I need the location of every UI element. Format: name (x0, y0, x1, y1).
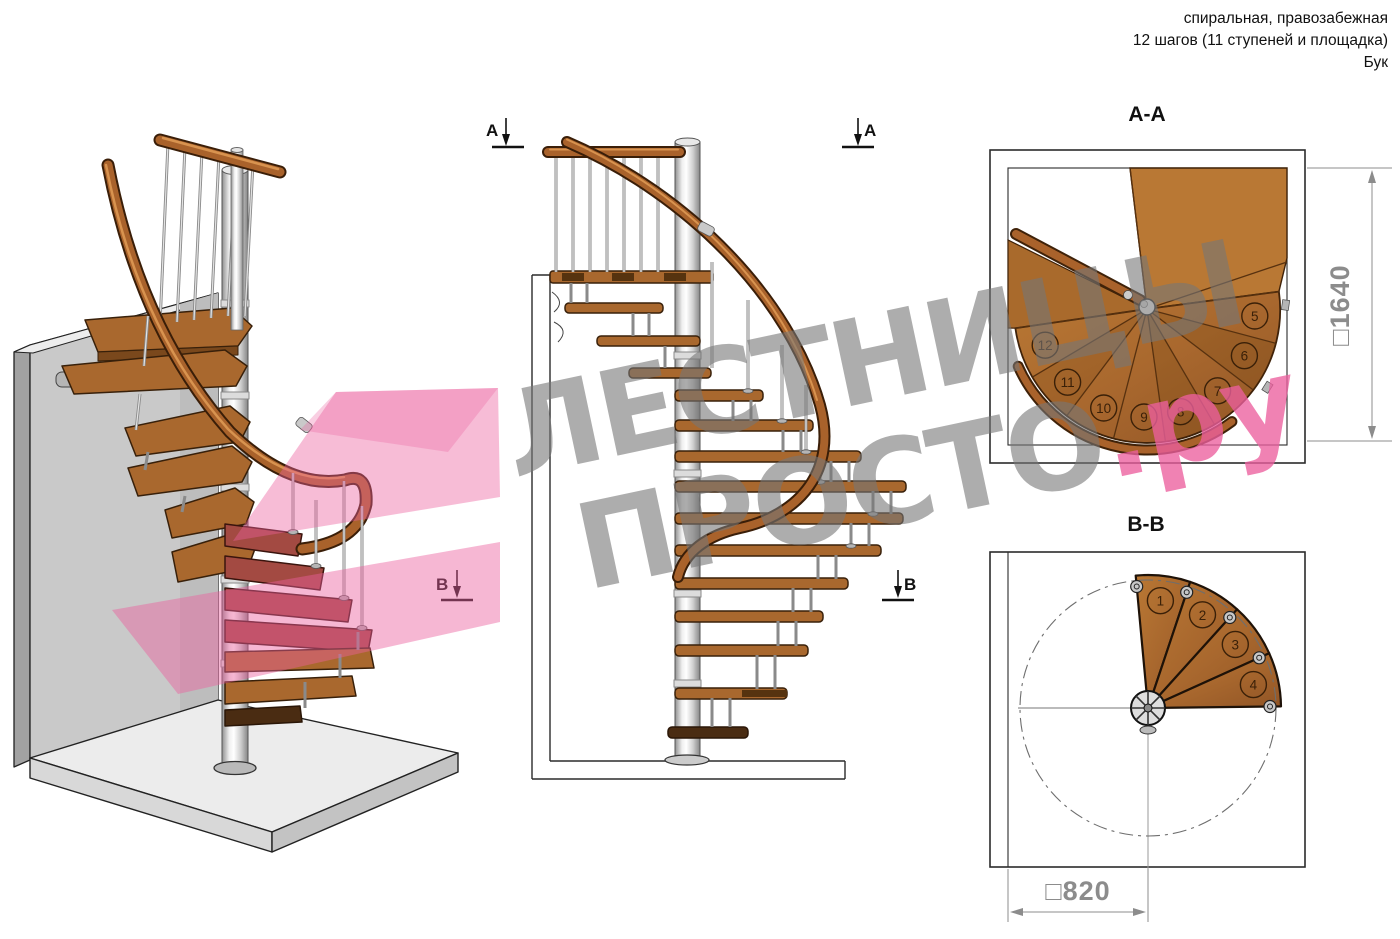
pole-base-elev (665, 755, 709, 765)
aa-dimension-label: □1640 (1325, 264, 1355, 345)
pole-cap-elev (675, 138, 700, 146)
bb-step-3: 3 (1232, 637, 1240, 652)
platform-board-1 (562, 273, 584, 281)
marker-a-left-label: А (486, 121, 498, 140)
tread-base-3d (225, 706, 302, 726)
step-n11-dark (668, 727, 748, 738)
title-line-material: Бук (1133, 52, 1388, 74)
platform-board-2 (612, 273, 634, 281)
staircase-drawing: А А В В А-А (0, 0, 1400, 939)
bb-hub-foot (1140, 726, 1156, 734)
bb-step-2: 2 (1199, 608, 1207, 623)
marker-b-right-label: В (904, 575, 916, 594)
step-n10-shadow (742, 690, 787, 697)
title-line-type: спиральная, правозабежная (1133, 8, 1388, 30)
step-n8 (675, 611, 823, 622)
section-marker-a-right: А (842, 118, 876, 147)
step-n9 (675, 645, 808, 656)
aa-step-5: 5 (1251, 309, 1259, 324)
bb-dimension-label: □820 (1045, 876, 1110, 906)
pole-base-flange-3d (214, 762, 256, 775)
section-marker-a-left: А (486, 118, 524, 147)
aa-dimension-1640: □1640 (1307, 168, 1392, 441)
title-line-steps: 12 шагов (11 ступеней и площадка) (1133, 30, 1388, 52)
wall-side-face (14, 345, 30, 767)
section-marker-b-right: В (882, 570, 916, 600)
section-aa-title: А-А (1128, 103, 1165, 126)
drawing-canvas: А А В В А-А (0, 0, 1400, 939)
marker-a-right-label: А (864, 121, 876, 140)
step-far-1 (565, 303, 663, 313)
wall-bracket-squiggle (552, 292, 563, 342)
bb-step-4: 4 (1250, 678, 1258, 693)
bb-dimension-820: □820 (1008, 869, 1148, 922)
bb-step-1: 1 (1157, 594, 1165, 609)
title-block: спиральная, правозабежная 12 шагов (11 с… (1133, 8, 1388, 74)
bb-hub-center (1144, 704, 1152, 712)
bb-plan-drawing: 1 2 3 4 (1018, 575, 1281, 916)
section-bb-title: В-В (1127, 513, 1164, 536)
section-bb-view: В-В (990, 513, 1305, 922)
platform-board-3 (664, 273, 686, 281)
platform-railing-3d (160, 138, 280, 330)
